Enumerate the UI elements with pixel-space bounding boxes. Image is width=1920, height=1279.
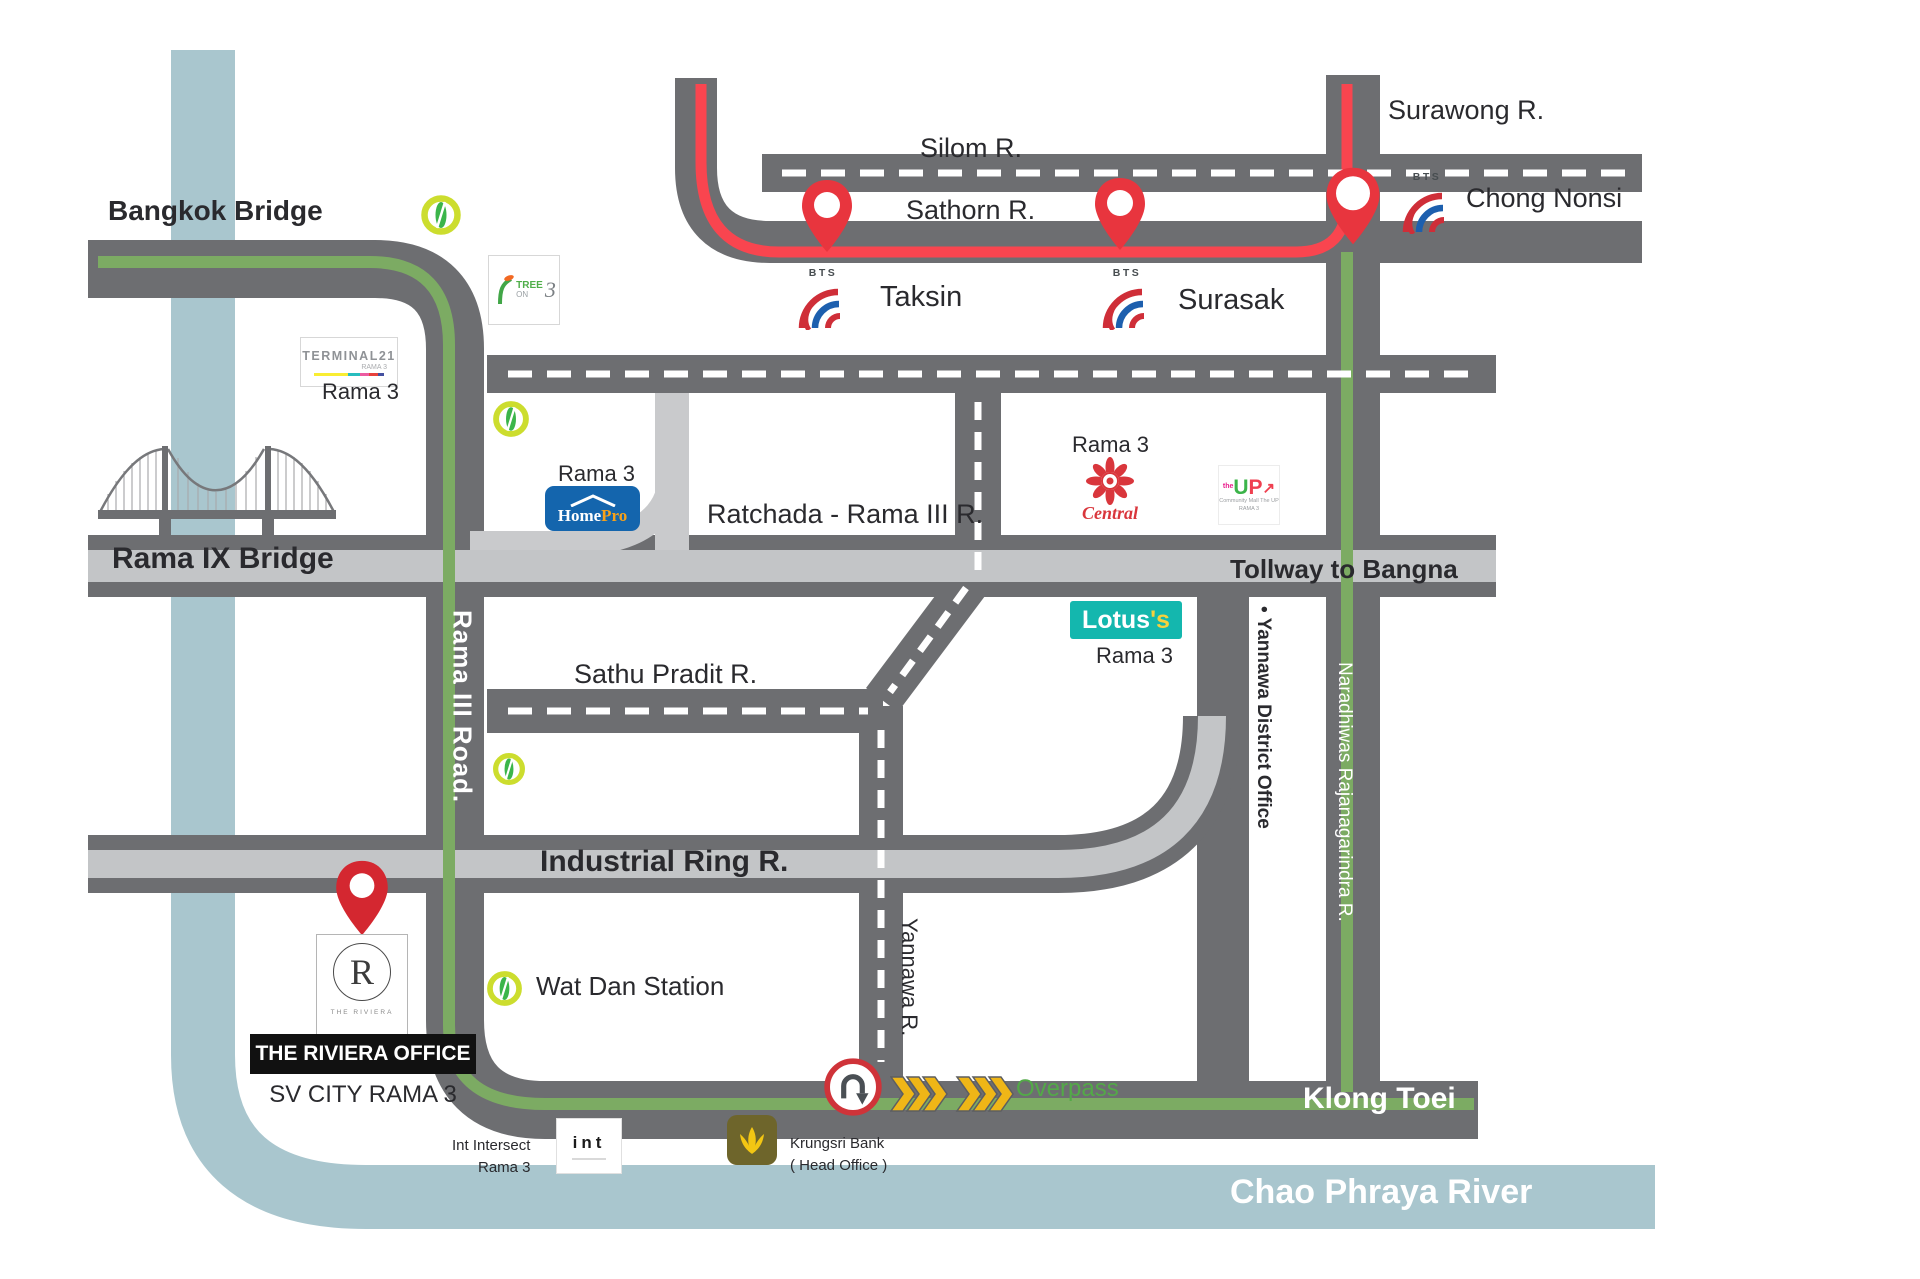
map-pin-riviera-office[interactable] <box>329 856 395 940</box>
riviera-letter: R <box>350 951 374 993</box>
up-u: U <box>1233 477 1248 498</box>
lotus-apostrophe-s: 's <box>1150 606 1170 635</box>
rama-ix-bridge-label: Rama IX Bridge <box>112 542 334 575</box>
brt-station-icon-wat-dan[interactable] <box>486 970 523 1007</box>
silom-road-label: Silom R. <box>920 134 1022 164</box>
riviera-location-map: BTS BTS BTS TERMINAL21 RAMA 3 <box>0 0 1920 1279</box>
riviera-logo-sub: THE RIVIERA <box>331 1009 394 1016</box>
svg-text:BTS: BTS <box>1113 267 1142 279</box>
svg-text:BTS: BTS <box>1413 171 1442 183</box>
svg-text:BTS: BTS <box>809 267 838 279</box>
tree-number: 3 <box>545 277 556 303</box>
riviera-office-badge[interactable]: THE RIVIERA OFFICE <box>250 1034 476 1074</box>
rama-iii-road-label: Rama III Road. <box>448 610 477 850</box>
lotus-rama3-caption: Rama 3 <box>1096 644 1173 668</box>
terminal21-sub: RAMA 3 <box>361 364 387 371</box>
taksin-station-label: Taksin <box>880 282 962 314</box>
industrial-ring-road-label: Industrial Ring R. <box>540 845 788 878</box>
tree-on-3-logo[interactable]: TREE ON 3 <box>488 255 560 325</box>
overpass-label: Overpass <box>1016 1076 1119 1102</box>
sathu-pradit-road-label: Sathu Pradit R. <box>574 660 757 690</box>
up-p: P <box>1249 477 1263 498</box>
homepro-logo[interactable]: HomePro <box>545 486 640 531</box>
up-caption-1: Community Mall The UP <box>1219 498 1279 505</box>
sv-city-label: SV CITY RAMA 3 <box>250 1082 476 1108</box>
int-intersect-rama3-label: Rama 3 <box>478 1160 531 1177</box>
map-pin-chong-nonsi[interactable] <box>1319 162 1387 250</box>
up-community-mall-logo[interactable]: theUP↗ Community Mall The UP RAMA 3 <box>1218 465 1280 525</box>
surawong-road-label: Surawong R. <box>1388 96 1544 126</box>
central-script-text: Central <box>1074 504 1146 524</box>
overpass-chevrons-icon <box>890 1072 1020 1116</box>
yannawa-district-office-label: • Yannawa District Office <box>1252 606 1273 866</box>
up-caption-2: RAMA 3 <box>1239 506 1259 513</box>
homepro-rama3-caption: Rama 3 <box>558 462 635 486</box>
bts-logo-chong-nonsi[interactable]: BTS <box>1398 170 1456 234</box>
chao-phraya-river-label: Chao Phraya River <box>1230 1174 1532 1211</box>
wat-dan-station-label: Wat Dan Station <box>536 972 724 1001</box>
suspension-bridge-icon <box>98 424 336 546</box>
lotus-logo[interactable]: Lotus's <box>1070 601 1182 639</box>
tree-icon <box>492 274 514 306</box>
sathorn-road-label: Sathorn R. <box>906 196 1035 226</box>
terminal21-color-bar <box>314 373 384 376</box>
homepro-home: Home <box>558 506 601 525</box>
map-pin-sathorn-2[interactable] <box>1088 174 1152 254</box>
terminal21-rama3-caption: Rama 3 <box>322 380 399 404</box>
tree-word2: ON <box>516 291 543 299</box>
brt-station-icon[interactable] <box>420 194 462 236</box>
bts-logo-taksin[interactable]: BTS <box>794 266 852 330</box>
riviera-logo-circle: R <box>333 943 391 1001</box>
industrial-ring-road-shape <box>88 716 1212 864</box>
ratchada-rama3-road-label: Ratchada - Rama III R. <box>707 500 983 530</box>
bangkok-bridge-label: Bangkok Bridge <box>108 196 323 227</box>
brt-station-icon[interactable] <box>492 400 530 438</box>
bts-logo-surasak[interactable]: BTS <box>1098 266 1156 330</box>
central-rama3-caption: Rama 3 <box>1072 433 1149 457</box>
krungsri-bank-logo[interactable] <box>726 1114 778 1166</box>
int-intersect-label: Int Intersect <box>452 1138 530 1155</box>
up-the: the <box>1223 483 1234 490</box>
krungsri-bank-label: Krungsri Bank <box>790 1136 884 1153</box>
lotus-name: Lotus <box>1082 606 1150 635</box>
riviera-logo[interactable]: R THE RIVIERA <box>316 934 408 1044</box>
up-arrow-icon: ↗ <box>1263 481 1276 496</box>
yannawa-road-label: Yannawa R. <box>897 918 921 1058</box>
riviera-office-label: THE RIVIERA OFFICE <box>255 1042 470 1066</box>
u-turn-sign-icon[interactable] <box>822 1056 884 1118</box>
int-logo-text: int <box>573 1133 606 1153</box>
int-intersect-logo[interactable]: int <box>556 1118 622 1174</box>
brt-station-icon[interactable] <box>492 752 526 786</box>
map-pin-sathorn-1[interactable] <box>795 176 859 256</box>
tollway-to-bangna-label: Tollway to Bangna <box>1230 555 1458 584</box>
klong-toei-label: Klong Toei <box>1303 1082 1456 1115</box>
homepro-pro: Pro <box>601 506 627 525</box>
terminal21-name: TERMINAL21 <box>302 349 395 363</box>
surasak-station-label: Surasak <box>1178 285 1284 317</box>
krungsri-head-office-label: ( Head Office ) <box>790 1158 887 1175</box>
chong-nonsi-station-label: Chong Nonsi <box>1466 184 1622 214</box>
naradhiwas-road-label: Naradhiwas Rajanagarindra R. <box>1333 662 1354 992</box>
central-flower-icon[interactable] <box>1085 457 1135 505</box>
